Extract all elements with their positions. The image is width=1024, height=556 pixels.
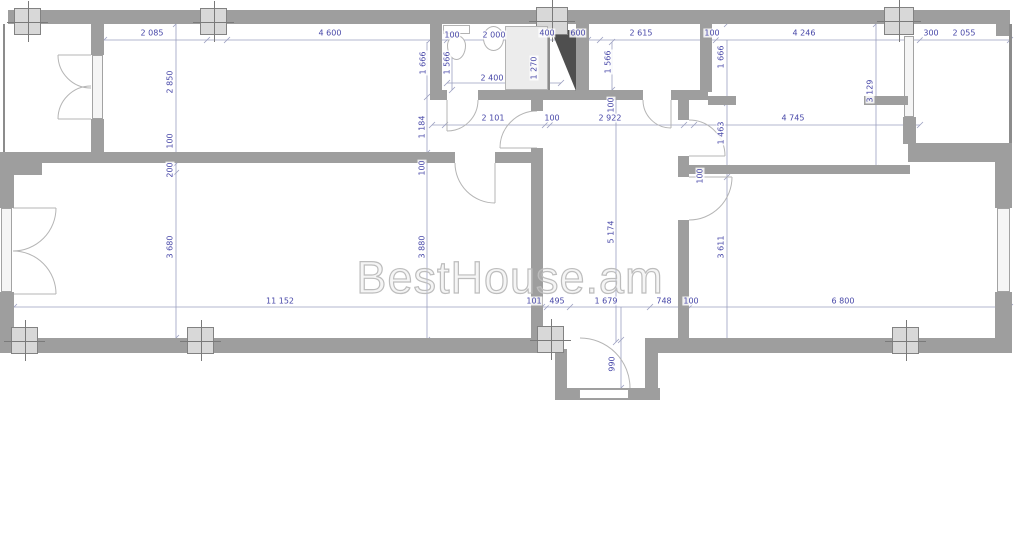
wall-livingroom-top-a <box>0 152 455 163</box>
dimension-label: 6 800 <box>831 297 856 306</box>
dimension-label: 3 611 <box>717 235 726 260</box>
dimension-label: 2 615 <box>629 29 654 38</box>
dimension-label: 101 <box>525 297 542 306</box>
door-swing <box>500 111 537 148</box>
wall-balcony-divider-upper <box>91 24 104 55</box>
bathroom-wall-left <box>430 24 442 92</box>
dimension-label: 2 085 <box>140 29 165 38</box>
dimension-label: 4 600 <box>318 29 343 38</box>
bathroom-wall-bottom-b <box>478 90 643 100</box>
dimension-label: 2 055 <box>952 29 977 38</box>
dimension-label: 2 101 <box>481 114 506 123</box>
dimension-label: 200 <box>166 161 175 178</box>
window-left <box>1 208 12 292</box>
dimension-label: 400 <box>538 29 555 38</box>
wall-top <box>8 10 1010 24</box>
dimension-label: 100 <box>166 132 175 149</box>
window-right <box>997 208 1010 292</box>
dimension-label: 100 <box>607 96 616 113</box>
dimension-label: 100 <box>543 114 560 123</box>
dimension-label: 1 463 <box>717 121 726 146</box>
door-swing <box>447 100 478 131</box>
column-marker <box>11 327 38 354</box>
corridor-wall-left-b <box>531 148 543 345</box>
dimension-label: 495 <box>548 297 565 306</box>
dimension-label: 4 745 <box>781 114 806 123</box>
dimension-label: 2 000 <box>482 31 507 40</box>
column-marker <box>187 327 214 354</box>
door-swing <box>455 163 495 203</box>
entrance-door-leaf <box>579 389 629 399</box>
dimension-label: 300 <box>922 29 939 38</box>
dimension-label: 1 566 <box>604 50 613 75</box>
wall-bedroom-top <box>688 165 910 174</box>
dimension-label: 100 <box>696 167 705 184</box>
dimension-label: 1 270 <box>530 56 539 81</box>
dimension-label: 1 679 <box>594 297 619 306</box>
column-marker <box>537 326 564 353</box>
door-swing <box>643 100 671 128</box>
dimension-label: 100 <box>443 31 460 40</box>
dimension-label: 100 <box>682 297 699 306</box>
dimension-label: 990 <box>608 355 617 372</box>
door-swing <box>58 86 91 119</box>
dimension-label: 100 <box>703 29 720 38</box>
corridor-wall-right-a <box>678 97 689 120</box>
dimension-label: 2 400 <box>480 74 505 83</box>
door-swing <box>13 251 56 294</box>
dimension-label: 1 666 <box>419 51 428 76</box>
door-swing <box>58 55 91 88</box>
wall-right-upper <box>995 160 1012 208</box>
column-marker <box>200 8 227 35</box>
floor-plan: BestHouse.am 2 0854 6001002 0004006002 6… <box>0 0 1024 556</box>
vestibule-wall-right <box>645 349 658 400</box>
balcony-wall-block <box>903 117 916 144</box>
dimension-label: 100 <box>418 159 427 176</box>
dimension-label: 3 880 <box>418 235 427 260</box>
balcony-glass-left-edge <box>3 24 5 154</box>
dimension-label: 3 680 <box>166 235 175 260</box>
entrance-door-swing <box>580 338 630 388</box>
wall-left-jog <box>13 163 42 175</box>
dimension-label: 11 152 <box>265 297 295 306</box>
dimension-label: 4 246 <box>792 29 817 38</box>
column-marker <box>14 8 41 35</box>
wall-bottom-left <box>4 338 555 353</box>
dimension-label: 748 <box>655 297 672 306</box>
dimension-label: 1 666 <box>717 45 726 70</box>
balcony-wall-bottom <box>908 143 1012 162</box>
balcony-glass-right <box>1009 24 1012 145</box>
wall-right-lower <box>995 292 1012 340</box>
column-marker <box>892 327 919 354</box>
dimension-label: 5 174 <box>607 220 616 245</box>
window-balcony-divider <box>92 55 103 119</box>
bathroom-wall-bottom-a <box>430 90 447 100</box>
corridor-wall-right-c <box>678 220 689 345</box>
dimension-label: 3 129 <box>866 79 875 104</box>
wall-bottom-right <box>645 338 1012 353</box>
wall-livingroom-top-b <box>495 152 531 163</box>
dimension-label: 1 184 <box>418 115 427 140</box>
door-swing <box>13 208 56 251</box>
dimension-label: 2 850 <box>166 70 175 95</box>
dimension-label: 600 <box>569 29 586 38</box>
column-marker <box>884 7 914 35</box>
dimension-label: 1 566 <box>443 51 452 76</box>
wall-stub-a <box>708 96 736 105</box>
dimension-label: 2 922 <box>598 114 623 123</box>
